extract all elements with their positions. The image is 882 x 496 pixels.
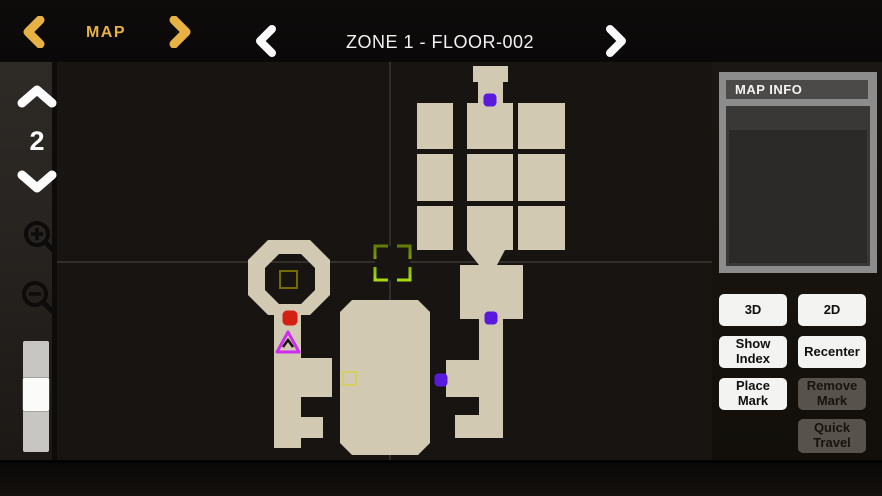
- place-mark-button[interactable]: Place Mark: [719, 378, 787, 410]
- floor-down-button chevron-down-icon[interactable]: [10, 168, 64, 201]
- show-index-button[interactable]: Show Index: [719, 336, 787, 368]
- map-canvas[interactable]: [57, 62, 712, 460]
- floor-title: ZONE 1 - FLOOR-002: [300, 32, 580, 53]
- menu-title: MAP: [64, 24, 148, 42]
- left-toolbar: 2: [0, 62, 57, 460]
- current-floor-number: 2: [10, 126, 64, 157]
- quick-travel-button[interactable]: Quick Travel: [798, 419, 866, 453]
- view-2d-button[interactable]: 2D: [798, 294, 866, 326]
- map-info-body: [726, 106, 870, 266]
- menu-prev-button chevron-left-icon[interactable]: [20, 16, 46, 48]
- recenter-button[interactable]: Recenter: [798, 336, 866, 368]
- floor-prev-button chevron-left-icon[interactable]: [252, 24, 278, 58]
- map-drawing: [57, 62, 712, 460]
- map-info-panel: MAP INFO: [719, 72, 877, 273]
- floor-up-button chevron-up-icon[interactable]: [10, 82, 64, 115]
- menu-next-button chevron-right-icon[interactable]: [168, 16, 194, 48]
- zoom-slider[interactable]: [23, 341, 49, 452]
- view-3d-button[interactable]: 3D: [719, 294, 787, 326]
- bottom-bar: [0, 460, 882, 496]
- top-bar: MAP ZONE 1 - FLOOR-002: [0, 0, 882, 62]
- floor-next-button chevron-right-icon[interactable]: [604, 24, 630, 58]
- right-panel: MAP INFO 3D 2D Show Index Recenter Place…: [712, 62, 882, 460]
- remove-mark-button[interactable]: Remove Mark: [798, 378, 866, 410]
- map-screen: MAP ZONE 1 - FLOOR-002 2: [0, 0, 882, 496]
- main-area: 2: [0, 62, 882, 460]
- map-info-title: MAP INFO: [726, 80, 868, 99]
- zoom-slider-thumb[interactable]: [23, 378, 49, 411]
- map-info-content: [729, 130, 867, 263]
